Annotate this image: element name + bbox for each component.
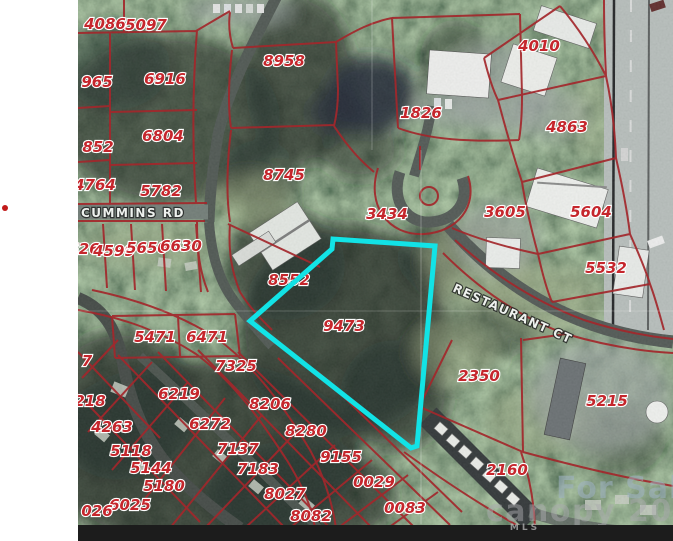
parcel-label: 8958: [263, 52, 305, 70]
parcel-label: 965: [81, 73, 112, 91]
parcel-label: 3605: [484, 203, 526, 221]
parcel-label: 0029: [353, 473, 395, 491]
parcel-label: 1826: [400, 104, 442, 122]
watermark-mls: MLS: [510, 523, 540, 533]
parcel-label: 6219: [158, 385, 200, 403]
parcel-label: 7137: [217, 440, 259, 458]
parcel-label: 2350: [458, 367, 500, 385]
parcel-label: 8027: [264, 485, 306, 503]
parcel-label: 4764: [73, 176, 116, 194]
parcel-label-highlighted: 9473: [323, 317, 365, 335]
parcel-label: 026: [81, 502, 112, 520]
parcel-label: 4086: [83, 15, 126, 33]
parcel-label: 7325: [215, 357, 257, 375]
parcel-label: 4863: [545, 118, 588, 136]
parcel-label: 8206: [249, 395, 291, 413]
parcel-label: 5144: [130, 459, 172, 477]
parcel-label: 4010: [517, 37, 560, 55]
parcel-label: 3434: [366, 205, 408, 223]
parcel-label: 5215: [586, 392, 628, 410]
parcel-label: 8745: [263, 166, 305, 184]
bottom-bar: [78, 525, 673, 541]
parcel-label: 5604: [570, 203, 612, 221]
parcel-label: 6630: [160, 237, 202, 255]
parcel-label: 6804: [142, 127, 184, 145]
parcel-label: 5471: [134, 328, 176, 346]
left-margin: [0, 0, 78, 541]
parcel-label: 4263: [90, 418, 133, 436]
parcel-label: 218: [74, 392, 105, 410]
street-label-cummins-rd: CUMMINS RD: [81, 206, 185, 220]
parcel-label: 7183: [237, 460, 279, 478]
parcel-label: 6272: [189, 415, 231, 433]
parcel-label: 6471: [186, 328, 228, 346]
parcel-label: 0083: [384, 499, 426, 517]
parcel-label: 8280: [285, 422, 327, 440]
map-canvas: 4086 5097 8958 1826 4010 4863 965 6916 8…: [0, 0, 673, 541]
marker-dot: [2, 205, 8, 211]
parcel-label: 8082: [290, 507, 332, 525]
parcel-label: 852: [82, 138, 113, 156]
parcel-label: 5180: [143, 477, 185, 495]
parcel-label: 7: [82, 352, 93, 370]
parcel-label: 5532: [585, 259, 627, 277]
parcel-label: 5097: [125, 16, 167, 34]
mls-aerial-parcel-map[interactable]: 4086 5097 8958 1826 4010 4863 965 6916 8…: [0, 0, 673, 541]
parcel-label: 9155: [320, 448, 362, 466]
parcel-label: 6916: [144, 70, 186, 88]
parcel-label: 2160: [486, 461, 528, 479]
parcel-label: 5118: [110, 442, 152, 460]
parcel-label: 6025: [109, 496, 151, 514]
parcel-label: 5782: [140, 182, 182, 200]
